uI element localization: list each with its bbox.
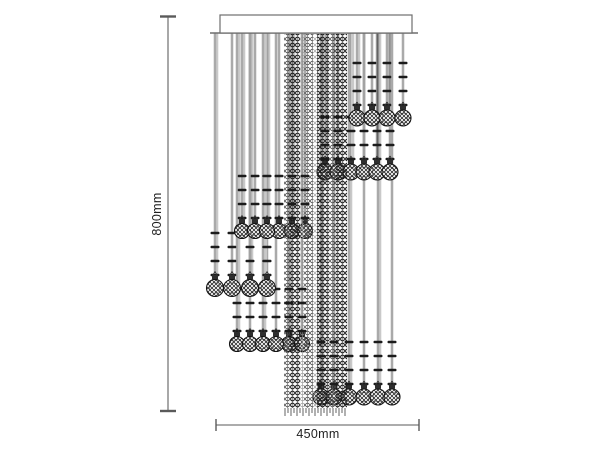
central-bead-column bbox=[284, 34, 347, 408]
crystal-ball bbox=[235, 216, 250, 239]
crystal-ball bbox=[370, 381, 386, 405]
crystal-ball bbox=[382, 156, 398, 180]
ceiling-canopy bbox=[210, 15, 418, 33]
height-dimension-label: 800mm bbox=[150, 184, 164, 244]
crystal-ball bbox=[395, 102, 411, 126]
crystal-ball bbox=[384, 381, 400, 405]
technical-drawing: 800mm 450mm bbox=[0, 0, 600, 450]
crystal-ball bbox=[256, 329, 271, 352]
crystal-ball bbox=[243, 329, 258, 352]
crystal-ball bbox=[230, 329, 245, 352]
width-dimension-label: 450mm bbox=[278, 427, 358, 441]
crystal-ball bbox=[260, 216, 275, 239]
crystal-ball bbox=[356, 381, 372, 405]
crystal-ball bbox=[242, 272, 259, 297]
chandelier-diagram bbox=[0, 0, 600, 450]
crystal-ball bbox=[259, 272, 276, 297]
crystal-ball bbox=[207, 272, 224, 297]
crystal-ball bbox=[269, 329, 284, 352]
column-bottom-fringe bbox=[285, 408, 345, 416]
